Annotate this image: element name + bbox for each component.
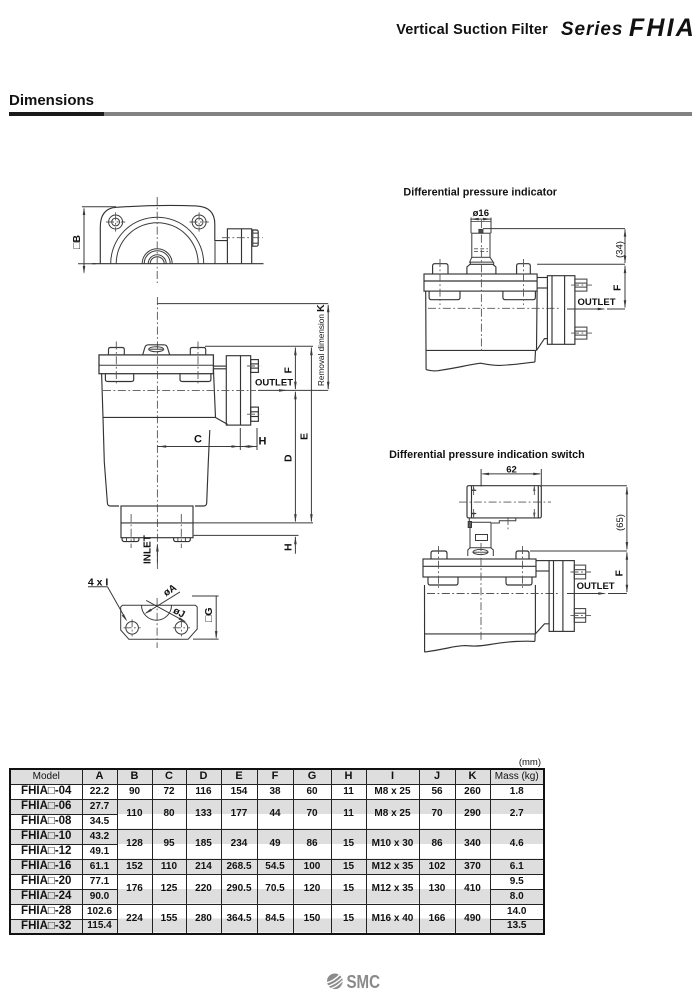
svg-text:øA: øA (162, 583, 179, 599)
svg-text:Differential pressure indicati: Differential pressure indication switch (389, 449, 585, 461)
svg-text:ø16: ø16 (473, 208, 489, 219)
svg-text:OUTLET: OUTLET (255, 378, 293, 389)
svg-text:H: H (259, 436, 267, 448)
svg-text:D: D (283, 454, 295, 462)
svg-text:Removal dimension: Removal dimension (317, 314, 326, 386)
svg-text:□B: □B (71, 235, 83, 249)
svg-text:H: H (283, 543, 295, 551)
svg-text:(65): (65) (615, 514, 626, 531)
svg-text:F: F (612, 284, 624, 291)
svg-text:□G: □G (203, 607, 215, 622)
svg-text:E: E (299, 433, 311, 440)
svg-text:F: F (613, 570, 625, 577)
svg-text:C: C (194, 434, 202, 446)
svg-text:INLET: INLET (143, 535, 154, 564)
svg-text:Differential pressure indicato: Differential pressure indicator (403, 187, 557, 199)
svg-text:(34): (34) (615, 241, 626, 258)
svg-text:F: F (283, 367, 295, 374)
svg-text:øJ: øJ (171, 605, 186, 620)
svg-text:OUTLET: OUTLET (578, 297, 616, 308)
svg-text:K: K (315, 304, 327, 312)
svg-text:OUTLET: OUTLET (577, 581, 615, 592)
svg-text:SMC: SMC (347, 971, 381, 992)
